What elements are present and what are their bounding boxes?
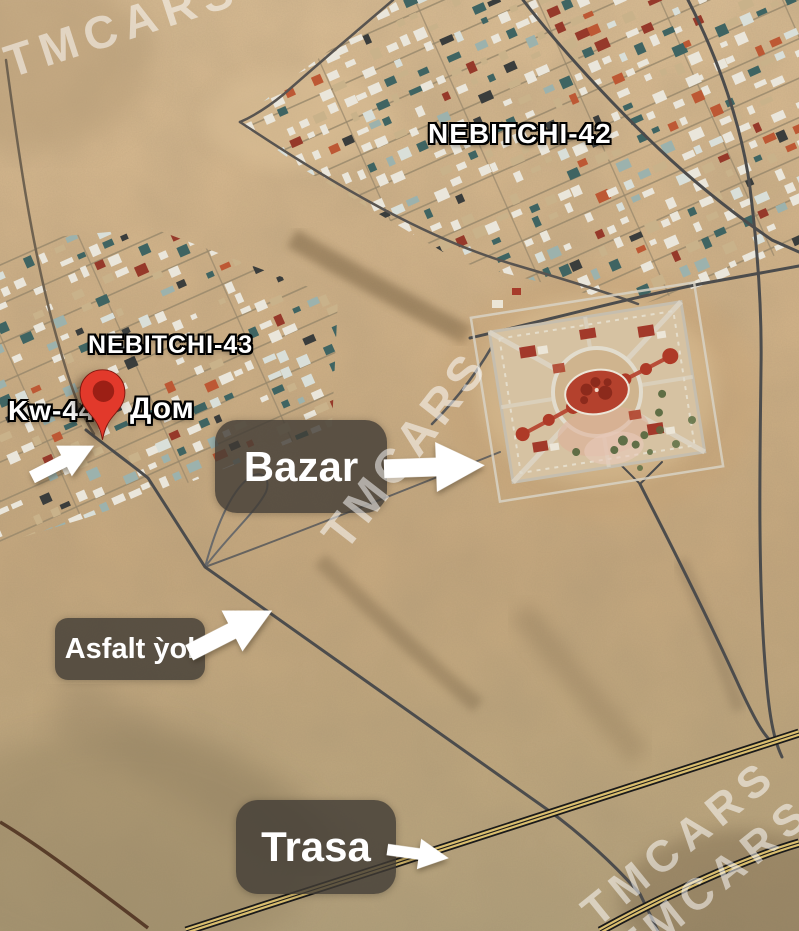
callout-bazar: Bazar (215, 420, 387, 513)
bazar-arrow-icon (382, 419, 489, 515)
settlement-label-nebitchi-43: NEBITCHI-43 (88, 331, 253, 360)
callout-trasa: Trasa (236, 800, 396, 894)
trasa-arrow-icon (384, 824, 455, 884)
settlement-label-nebitchi-42: NEBITCHI-42 (428, 118, 612, 150)
callout-bazar-label: Bazar (244, 443, 358, 491)
house-label: Дом (130, 392, 195, 426)
callout-trasa-label: Trasa (261, 823, 371, 871)
listing-map-image: NEBITCHI-42 NEBITCHI-43 Kw-44 Дом Bazar … (0, 0, 799, 931)
callout-asfalt-yol-label: Asfalt ỳol (65, 633, 196, 666)
